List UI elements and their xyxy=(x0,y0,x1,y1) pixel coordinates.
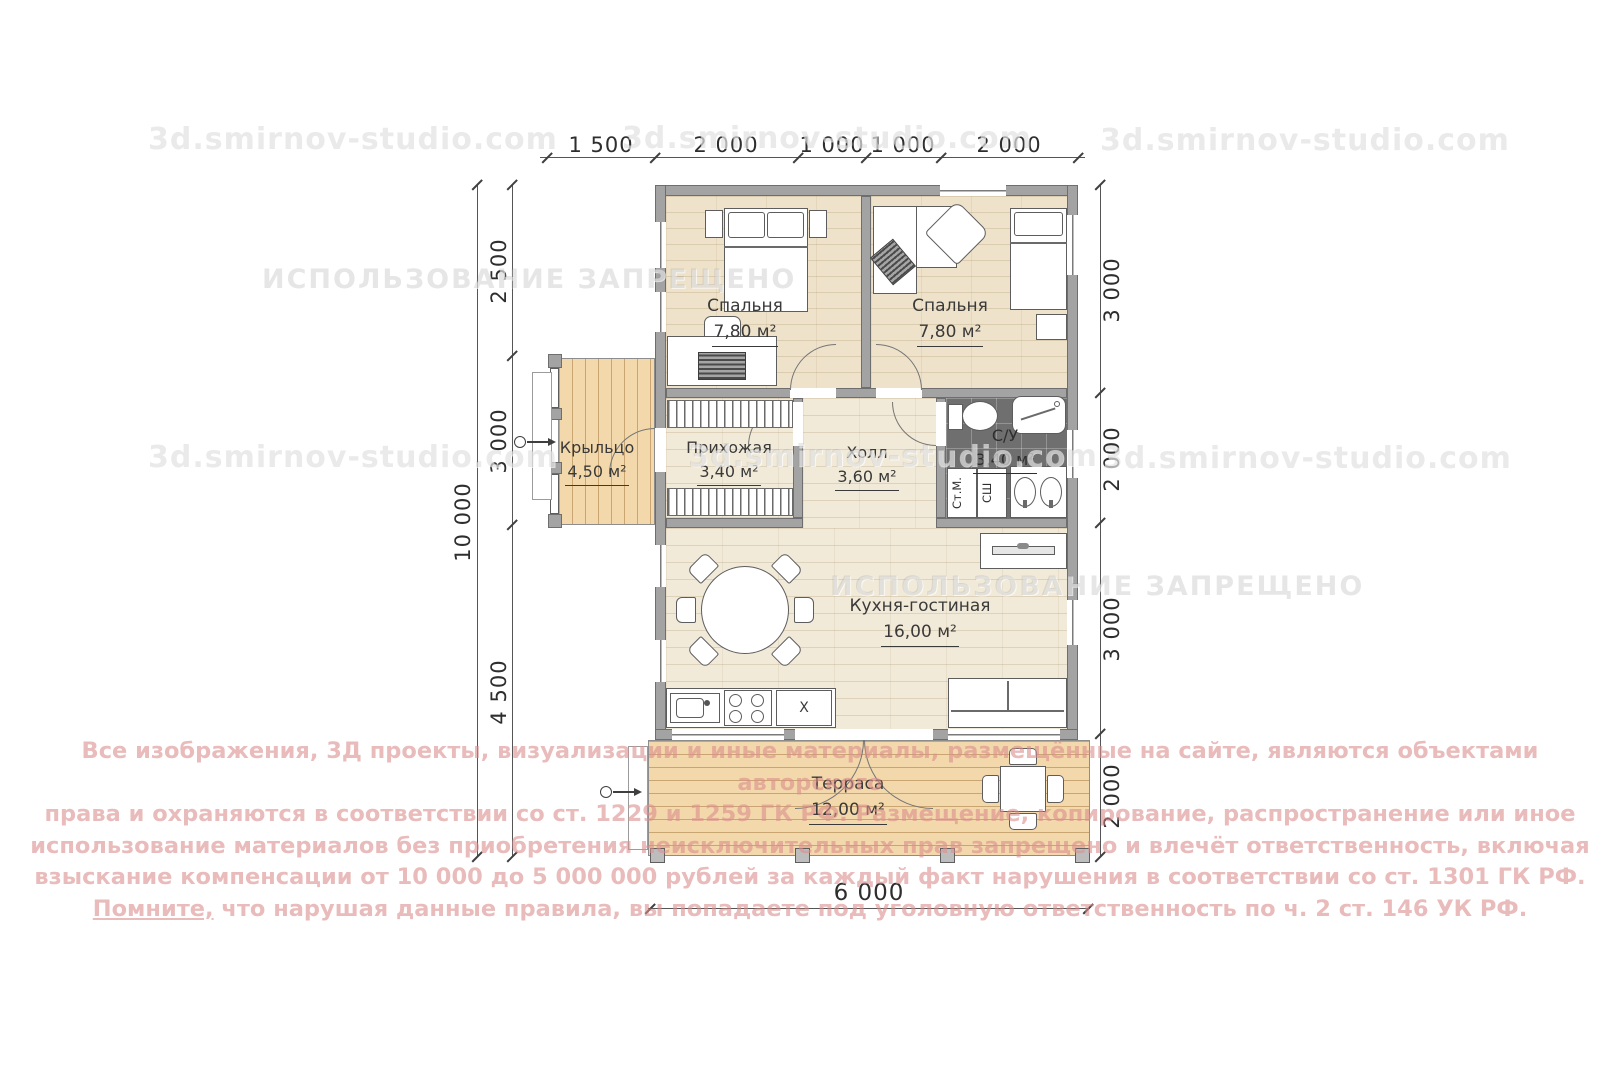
copyright-notice: Все изображения, 3Д проекты, визуализаци… xyxy=(20,736,1600,925)
window-marker xyxy=(940,185,1006,196)
wall-bedroom-divider xyxy=(861,196,871,388)
room-area: 7,80 м² xyxy=(917,320,984,348)
tv-icon xyxy=(698,352,746,380)
blanket-line xyxy=(724,246,808,248)
sofa-cushion-line xyxy=(1007,681,1009,711)
bathtub-tap-icon xyxy=(1054,401,1060,407)
cabinet-label: X xyxy=(776,698,832,719)
porch-post xyxy=(548,514,562,528)
floor-plan: Ст.М. СШ X Спа xyxy=(0,0,1620,1080)
room-area: 4,50 м² xyxy=(565,460,628,486)
wall-middle-kitchen-left xyxy=(666,518,803,528)
washing-machine-label: Ст.М. xyxy=(950,470,974,516)
burner-icon xyxy=(751,710,764,723)
dimension-label: 4 500 xyxy=(487,642,511,742)
copyright-line: взыскание компенсации от 10 000 до 5 000… xyxy=(20,862,1600,894)
room-name: Спальня xyxy=(665,294,825,320)
nightstand-icon xyxy=(809,210,827,238)
room-label-bedroom-2: Спальня 7,80 м² xyxy=(870,294,1030,347)
watermark-site: 3d.smirnov-studio.com xyxy=(1102,441,1402,476)
sink-tap xyxy=(1023,500,1027,508)
copyright-line: Все изображения, 3Д проекты, визуализаци… xyxy=(20,736,1600,799)
wall-middle-kitchen-right xyxy=(936,518,1067,528)
watermark-site: 3d.smirnov-studio.com xyxy=(688,439,988,474)
porch-post xyxy=(548,354,562,368)
kitchen-tap xyxy=(704,700,710,706)
dimension-line xyxy=(540,157,1085,158)
dimension-label: 3 000 xyxy=(1100,240,1124,340)
window-marker xyxy=(655,640,666,682)
room-name: Крыльцо xyxy=(547,436,647,460)
watermark-site: 3d.smirnov-studio.com xyxy=(148,440,448,475)
dimension-label: 10 000 xyxy=(451,472,475,572)
window-marker xyxy=(655,222,666,268)
burner-icon xyxy=(729,710,742,723)
window-marker xyxy=(1067,215,1078,275)
watermark-site: 3d.smirnov-studio.com xyxy=(622,121,922,156)
copyright-line: права и охраняются в соответствии со ст.… xyxy=(20,799,1600,831)
dryer-label: СШ xyxy=(980,470,1004,516)
burner-icon xyxy=(729,694,742,707)
pillow-icon xyxy=(728,212,765,238)
room-area: 16,00 м² xyxy=(881,620,959,648)
chair-icon xyxy=(676,597,696,623)
bench-icon xyxy=(1036,314,1067,340)
copyright-lead: Помните, xyxy=(93,896,214,922)
kitchen-sink-basin xyxy=(676,698,704,718)
wall-top xyxy=(655,185,1078,196)
window-marker xyxy=(1067,600,1078,645)
room-area: 7,80 м² xyxy=(712,320,779,348)
burner-icon xyxy=(751,694,764,707)
tv-lens xyxy=(1017,543,1029,549)
blanket-line xyxy=(1010,242,1067,244)
dining-table-icon xyxy=(701,566,789,654)
copyright-line: использование материалов без приобретени… xyxy=(20,831,1600,863)
pillow-icon xyxy=(767,212,804,238)
room-label-porch: Крыльцо 4,50 м² xyxy=(547,436,647,486)
wardrobe-icon xyxy=(667,400,793,428)
watermark-forbidden: ИСПОЛЬЗОВАНИЕ ЗАПРЕЩЕНО xyxy=(262,264,702,295)
watermark-forbidden: ИСПОЛЬЗОВАНИЕ ЗАПРЕЩЕНО xyxy=(830,571,1270,602)
wall-bedrooms-middle xyxy=(666,388,1067,398)
watermark-site: 3d.smirnov-studio.com xyxy=(148,122,448,157)
chair-icon xyxy=(794,597,814,623)
nightstand-icon xyxy=(705,210,723,238)
pillow-icon xyxy=(1014,212,1063,236)
sink-tap xyxy=(1049,500,1053,508)
wardrobe-icon xyxy=(667,488,793,516)
copyright-line: Помните, что нарушая данные правила, вы … xyxy=(20,894,1600,926)
window-marker xyxy=(655,545,666,587)
watermark-site: 3d.smirnov-studio.com xyxy=(1100,123,1400,158)
room-name: Спальня xyxy=(870,294,1030,320)
room-label-bedroom-1: Спальня 7,80 м² xyxy=(665,294,825,347)
copyright-rest: что нарушая данные правила, вы попадаете… xyxy=(214,896,1528,922)
